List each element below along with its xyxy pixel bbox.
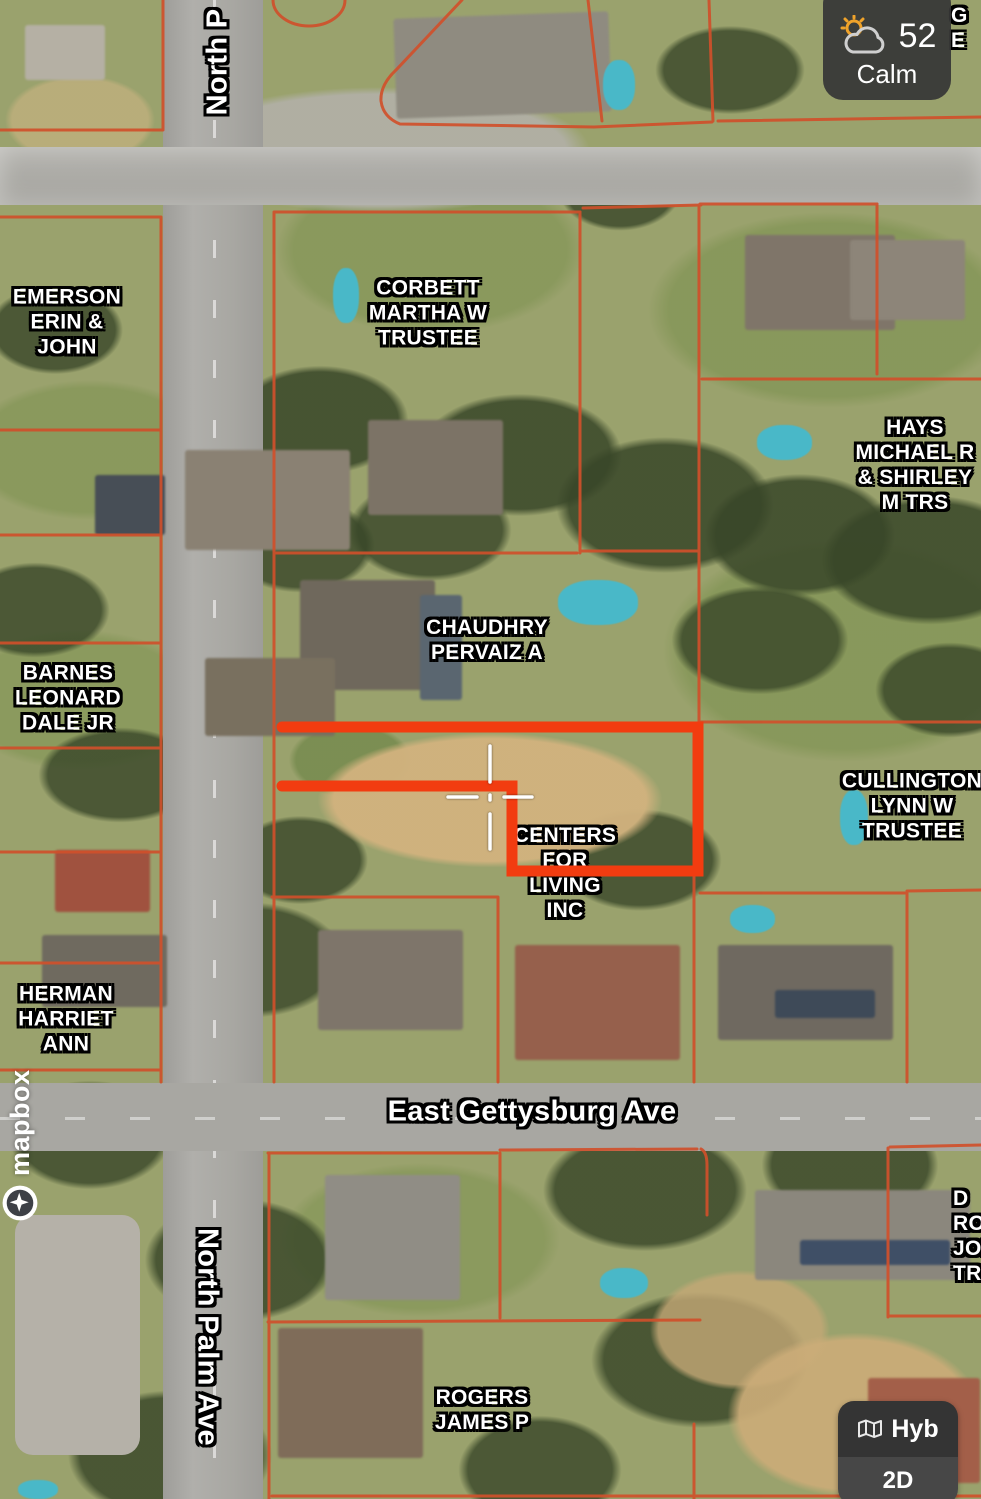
map-dimension-button[interactable]: 2D xyxy=(838,1457,958,1499)
map-icon xyxy=(857,1419,883,1439)
selection-overlay xyxy=(0,0,981,1499)
mapbox-logo-text: mapbox xyxy=(5,1069,36,1176)
map-dimension-label: 2D xyxy=(883,1467,914,1495)
map-style-button[interactable]: Hyb xyxy=(838,1401,958,1457)
map-style-control: Hyb 2D xyxy=(838,1401,958,1499)
mapbox-attribution[interactable]: mapbox xyxy=(0,1054,40,1222)
partly-cloudy-icon xyxy=(838,15,894,57)
map-style-label: Hyb xyxy=(891,1415,938,1444)
temperature-value: 52 xyxy=(899,17,937,56)
mapbox-logo-icon xyxy=(1,1184,39,1222)
map-view[interactable]: North PNorth Palm AveEast Gettysburg Ave… xyxy=(0,0,981,1499)
wind-status: Calm xyxy=(857,59,918,90)
crosshair-icon xyxy=(448,746,532,849)
weather-widget[interactable]: 52 Calm xyxy=(823,0,951,100)
